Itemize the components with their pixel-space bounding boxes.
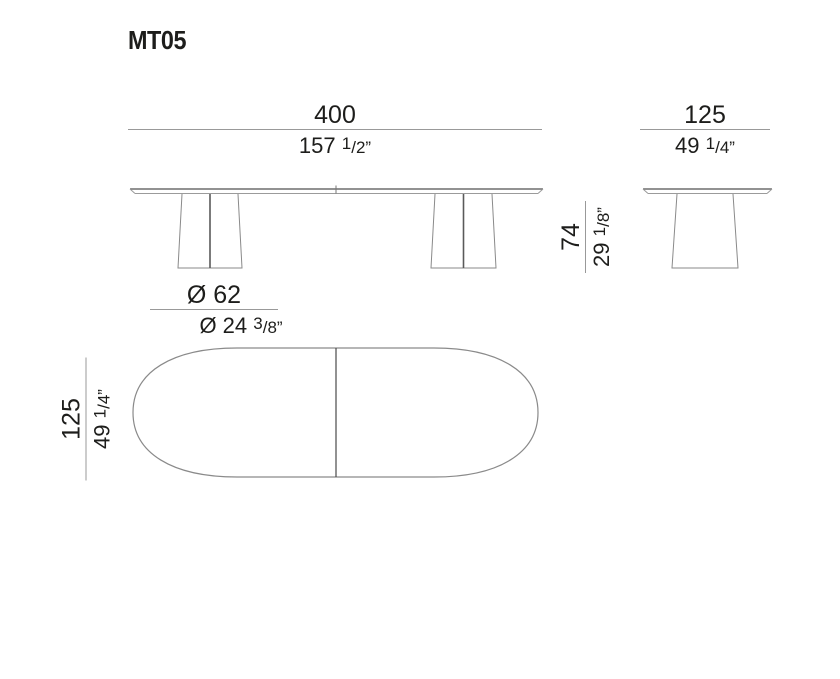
front-leg-left: [178, 194, 242, 268]
front-leg-right: [431, 194, 496, 268]
side-view: [643, 189, 772, 268]
side-leg: [672, 194, 738, 268]
side-tabletop: [643, 189, 772, 194]
front-tabletop: [130, 186, 543, 194]
top-view: [133, 348, 538, 477]
spec-sheet: MT05 400 157 1/2” 125 49 1/4” 74 29 1/8”…: [0, 0, 840, 679]
front-view: [130, 186, 543, 269]
technical-drawing: [0, 0, 840, 679]
